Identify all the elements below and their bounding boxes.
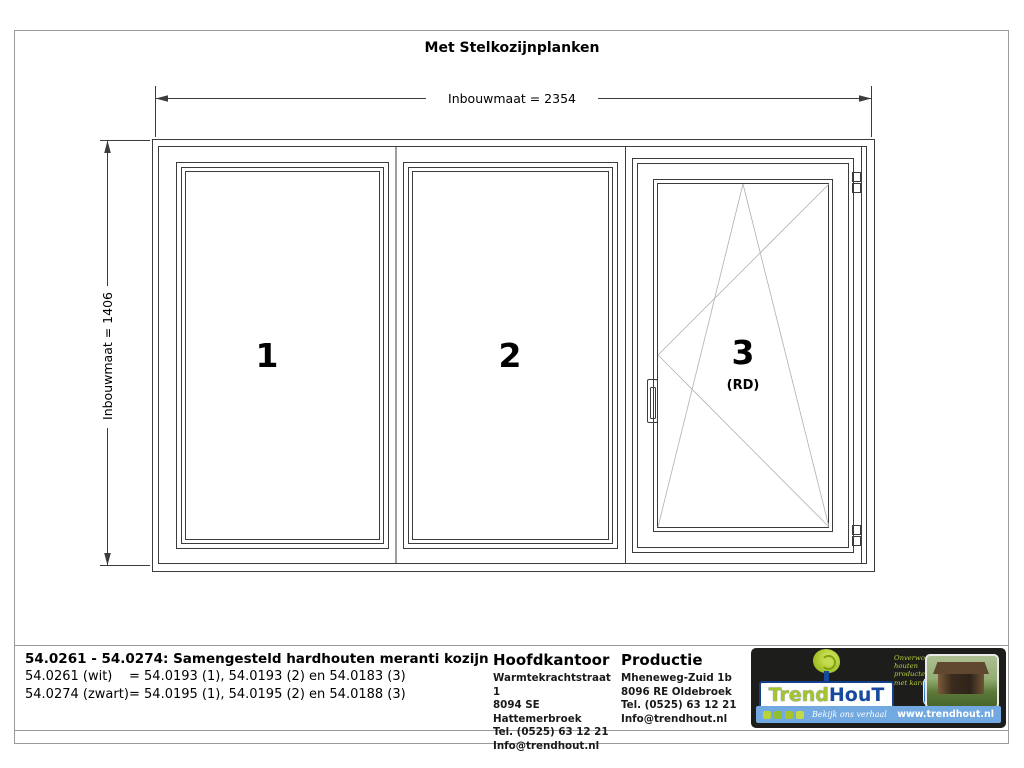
panel1-opening bbox=[177, 163, 389, 549]
variant-wit-row: 54.0261 (wit) = 54.0193 (1), 54.0193 (2)… bbox=[25, 668, 493, 686]
hoofdkantoor-tel: Tel. (0525) 63 12 21 bbox=[493, 726, 621, 740]
dimension-arrows bbox=[104, 95, 871, 565]
window-frame-drawing: Inbouwmaat = 2354 Inbouwmaat = 1406 1 2 … bbox=[0, 0, 1024, 645]
brand-wordmark: TrendHouT bbox=[759, 681, 894, 709]
variant-zwart-label: 54.0274 (zwart) bbox=[25, 686, 129, 704]
social-icon-1 bbox=[763, 711, 771, 719]
social-icon-3 bbox=[785, 711, 793, 719]
dim-height-label: Inbouwmaat = 1406 bbox=[100, 292, 115, 420]
variant-zwart-value: = 54.0195 (1), 54.0195 (2) en 54.0188 (3… bbox=[129, 686, 406, 704]
hoofdkantoor-address1: Warmtekrachtstraat 1 bbox=[493, 672, 621, 699]
hoofdkantoor-email: Info@trendhout.nl bbox=[493, 740, 621, 754]
social-icon-4 bbox=[796, 711, 804, 719]
veranda-photo bbox=[925, 654, 999, 709]
productie-tel: Tel. (0525) 63 12 21 bbox=[621, 699, 749, 713]
dim-width-label: Inbouwmaat = 2354 bbox=[448, 91, 576, 106]
panel3-sublabel: (RD) bbox=[727, 378, 760, 393]
title-block: 54.0261 - 54.0274: Samengesteld hardhout… bbox=[14, 645, 1009, 731]
logo-bottom-bar: Bekijk ons verhaal www.trendhout.nl bbox=[756, 706, 1001, 723]
product-heading: 54.0261 - 54.0274: Samengesteld hardhout… bbox=[25, 651, 493, 668]
website-url: www.trendhout.nl bbox=[897, 709, 994, 720]
panel3-label: 3 bbox=[732, 333, 755, 372]
office-productie: Productie Mheneweg-Zuid 1b 8096 RE Oldeb… bbox=[621, 646, 749, 730]
dimension-lines bbox=[100, 86, 872, 566]
brand-trend: Trend bbox=[769, 683, 829, 707]
photo-roof bbox=[933, 662, 989, 674]
productie-address2: 8096 RE Oldebroek bbox=[621, 686, 749, 700]
window-handle bbox=[648, 380, 658, 423]
photo-wall bbox=[938, 674, 984, 694]
hoofdkantoor-title: Hoofdkantoor bbox=[493, 651, 621, 669]
panel1-label: 1 bbox=[256, 336, 279, 375]
brand-hout: HouT bbox=[829, 683, 884, 707]
productie-title: Productie bbox=[621, 651, 749, 669]
productie-address1: Mheneweg-Zuid 1b bbox=[621, 672, 749, 686]
social-icon-2 bbox=[774, 711, 782, 719]
variant-wit-label: 54.0261 (wit) bbox=[25, 668, 129, 686]
variant-zwart-row: 54.0274 (zwart) = 54.0195 (1), 54.0195 (… bbox=[25, 686, 493, 704]
panel2-label: 2 bbox=[499, 336, 522, 375]
tree-swirl-icon bbox=[821, 655, 836, 670]
variant-wit-value: = 54.0193 (1), 54.0193 (2) en 54.0183 (3… bbox=[129, 668, 406, 686]
office-hoofdkantoor: Hoofdkantoor Warmtekrachtstraat 1 8094 S… bbox=[493, 646, 621, 730]
productie-email: Info@trendhout.nl bbox=[621, 713, 749, 727]
product-description: 54.0261 - 54.0274: Samengesteld hardhout… bbox=[15, 646, 493, 730]
cta-text: Bekijk ons verhaal bbox=[812, 710, 887, 719]
trendhout-logo-panel: TrendHouT Onverwoestbare houten producte… bbox=[751, 648, 1006, 728]
hoofdkantoor-address2: 8094 SE Hattemerbroek bbox=[493, 699, 621, 726]
